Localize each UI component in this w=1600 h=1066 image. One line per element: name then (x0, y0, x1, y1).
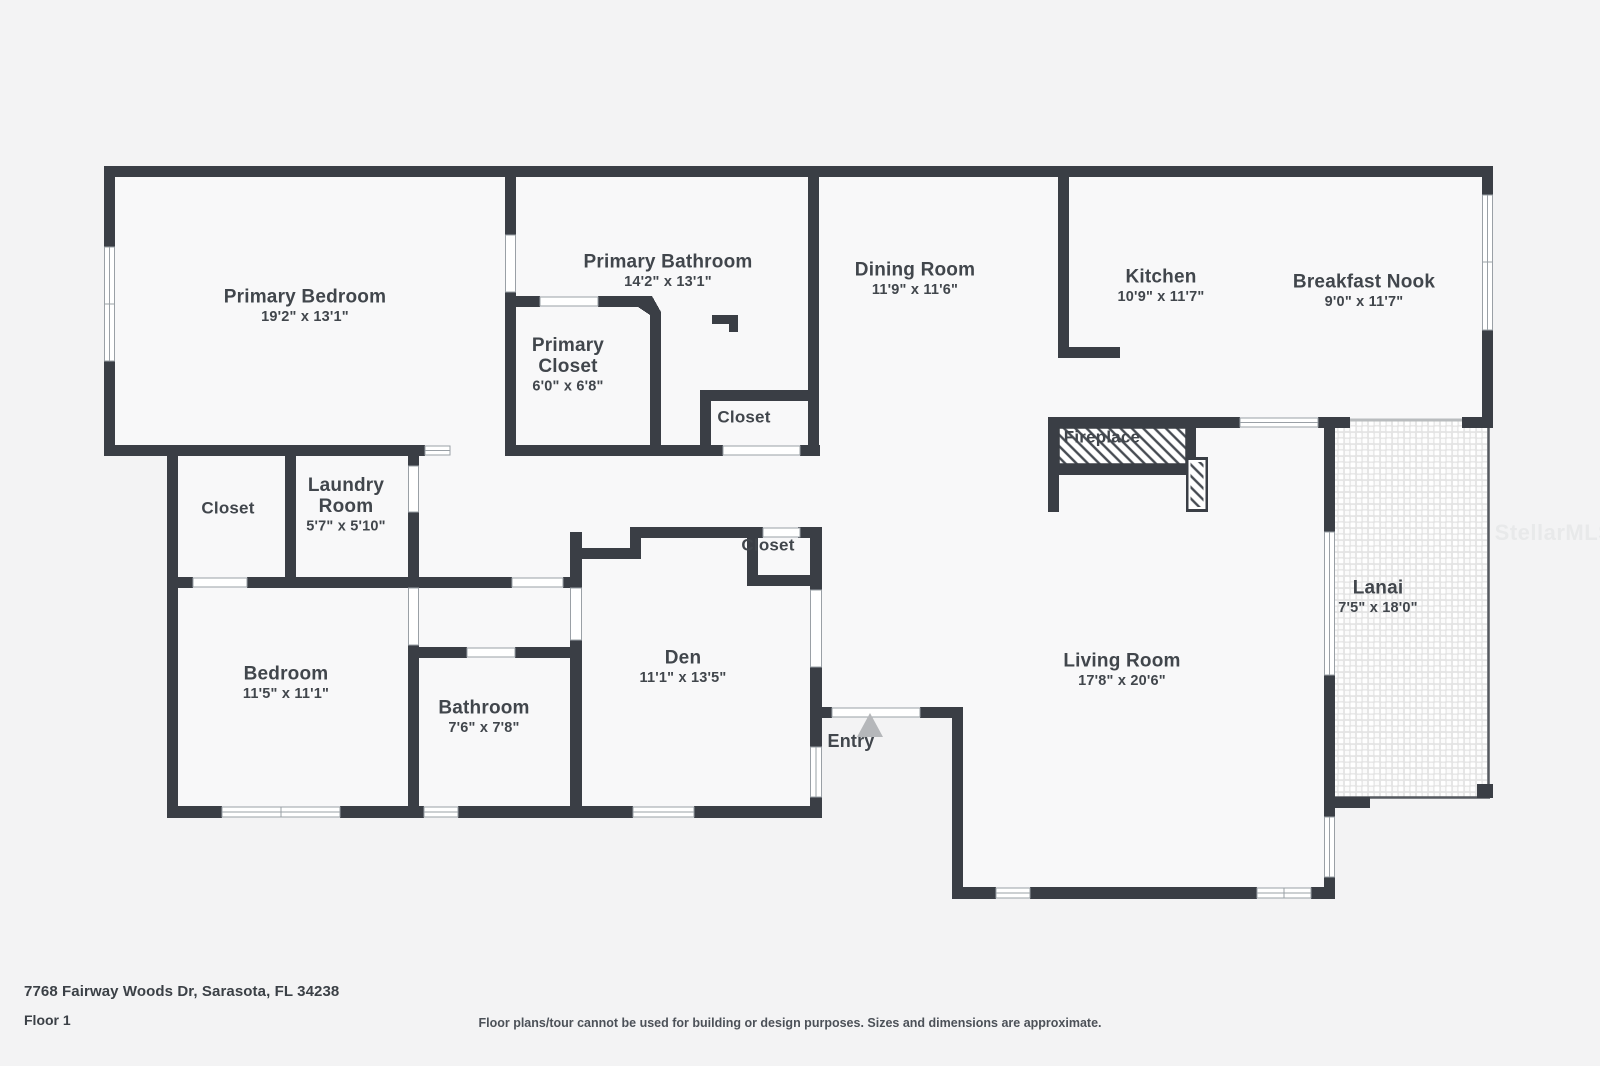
door-closet-primary-bath (723, 446, 800, 455)
window-living-bottom-left (996, 888, 1030, 898)
room-label-bedroom: Bedroom (244, 664, 329, 685)
door-primary-bedroom (425, 446, 450, 455)
opening-den-foyer (811, 590, 822, 667)
door-bedroom (409, 588, 419, 645)
room-label-primary-bedroom-dims: 19'2" x 13'1" (261, 309, 349, 325)
room-label-bathroom: Bathroom (438, 698, 529, 719)
door-closet-hall (193, 578, 247, 587)
front-door (832, 708, 920, 717)
room-label-kitchen-dims: 10'9" x 11'7" (1118, 289, 1205, 305)
door-primary-closet (540, 297, 598, 306)
room-label-laundry-room: Room (319, 496, 374, 517)
room-label-lanai: Lanai (1353, 578, 1404, 599)
room-label-closet-hall: Closet (201, 499, 254, 518)
room-label-living-room-dims: 17'8" x 20'6" (1078, 673, 1166, 689)
room-label-closet-primary-bath: Closet (717, 408, 770, 427)
room-label-breakfast-nook-dims: 9'0" x 11'7" (1325, 294, 1404, 310)
window-living-right (1325, 817, 1335, 877)
room-label-primary-closet: Primary (532, 335, 604, 356)
room-label-lanai-dims: 7'5" x 18'0" (1338, 600, 1418, 616)
opening-hallway (512, 578, 563, 587)
room-label-primary-bathroom: Primary Bathroom (584, 252, 753, 273)
room-label-bathroom-dims: 7'6" x 7'8" (448, 720, 519, 736)
room-label-living-room: Living Room (1063, 651, 1180, 672)
window-bedroom-bottom (222, 807, 340, 817)
footer-disclaimer: Floor plans/tour cannot be used for buil… (0, 1016, 1580, 1030)
window-breakfast-nook-right (1483, 195, 1493, 330)
floor-plan-page: Primary Bedroom19'2" x 13'1"Primary Bath… (0, 0, 1600, 1066)
floor-plan-svg: Primary Bedroom19'2" x 13'1"Primary Bath… (0, 0, 1600, 1066)
room-label-den: Den (665, 648, 702, 669)
room-label-primary-bathroom-dims: 14'2" x 13'1" (624, 274, 712, 290)
window-entry-side (811, 747, 822, 797)
room-label-laundry-room: Laundry (308, 475, 385, 496)
room-label-kitchen: Kitchen (1125, 267, 1196, 288)
window-living-bottom-right (1257, 888, 1311, 898)
room-label-entry: Entry (827, 731, 874, 751)
room-label-breakfast-nook: Breakfast Nook (1293, 272, 1435, 293)
footer-address: 7768 Fairway Woods Dr, Sarasota, FL 3423… (24, 983, 339, 1000)
door-laundry (409, 466, 419, 512)
watermark: StellarMLS (1495, 520, 1600, 545)
slider-kitchen-lanai (1240, 418, 1318, 427)
room-label-dining-room-dims: 11'9" x 11'6" (872, 282, 958, 298)
window-den-bottom (633, 807, 694, 817)
room-label-primary-closet: Closet (538, 356, 598, 377)
room-label-dining-room: Dining Room (855, 260, 975, 281)
room-label-laundry-room-dims: 5'7" x 5'10" (306, 519, 386, 535)
window-primary-bedroom-left (105, 247, 115, 361)
room-label-primary-bedroom: Primary Bedroom (224, 287, 386, 308)
room-label-bedroom-dims: 11'5" x 11'1" (243, 686, 329, 702)
door-bathroom (467, 648, 515, 657)
door-den (571, 588, 582, 640)
room-label-den-dims: 11'1" x 13'5" (640, 670, 727, 686)
opening-primary-bath (506, 235, 516, 292)
room-label-primary-closet-dims: 6'0" x 6'8" (532, 379, 603, 395)
fireplace-pillar-hatch (1190, 461, 1205, 508)
room-label-fireplace: Fireplace (1064, 428, 1140, 447)
window-bathroom-bottom (424, 807, 458, 817)
room-label-closet-den: Closet (741, 536, 794, 555)
slider-living-lanai (1325, 532, 1335, 675)
